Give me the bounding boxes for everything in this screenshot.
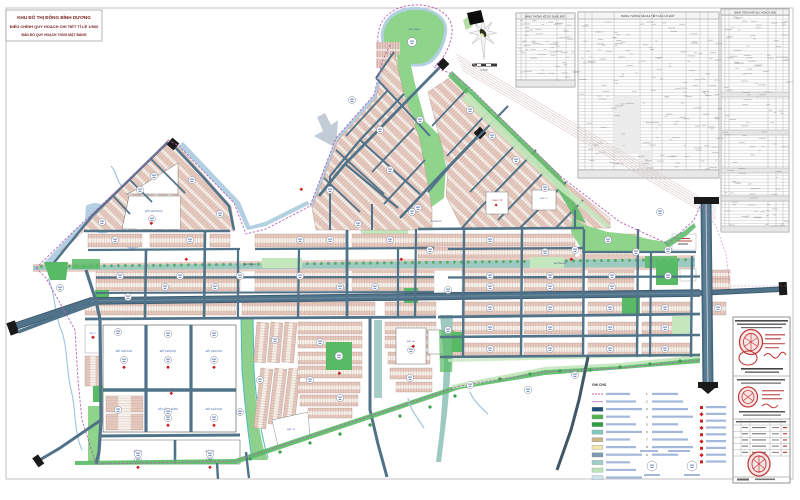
svg-text:BẢNG THỐNG KÊ CHI TIẾT CÁC LÔ: BẢNG THỐNG KÊ CHI TIẾT CÁC LÔ ĐẤT	[621, 13, 674, 18]
svg-text:ĐIỀU CHỈNH QUY HOẠCH CHI TIẾT: ĐIỀU CHỈNH QUY HOẠCH CHI TIẾT TỈ LỆ 1/50…	[10, 24, 99, 29]
svg-text:ĐẤT CX: ĐẤT CX	[287, 428, 296, 431]
svg-text:ĐẤT GIÁO DỤC: ĐẤT GIÁO DỤC	[145, 210, 162, 213]
svg-text:BẢNG TỔNG HỢP QUY HOẠCH SDĐ: BẢNG TỔNG HỢP QUY HOẠCH SDĐ	[734, 12, 775, 15]
svg-text:GHI CHÚ: GHI CHÚ	[592, 382, 607, 387]
svg-text:ĐẤT CC: ĐẤT CC	[90, 332, 97, 335]
svg-text:9.: 9.	[646, 453, 649, 457]
svg-text:ĐẤT GIÁO DỤC: ĐẤT GIÁO DỤC	[206, 408, 223, 411]
svg-text:CÂY XANH: CÂY XANH	[408, 28, 420, 31]
svg-text:ĐẤT GD: ĐẤT GD	[407, 340, 416, 343]
svg-text:BẢN ĐỒ QUY HOẠCH TỔNG MẶT BẰNG: BẢN ĐỒ QUY HOẠCH TỔNG MẶT BẰNG	[22, 32, 87, 37]
svg-text:ĐƯỜNG D1: ĐƯỜNG D1	[244, 263, 257, 266]
svg-text:3.: 3.	[646, 407, 649, 411]
svg-text:ĐẤT GIÁO DỤC: ĐẤT GIÁO DỤC	[160, 350, 177, 353]
svg-text:ĐẤT CC: ĐẤT CC	[540, 197, 548, 200]
svg-text:ĐẤT GIÁO DỤC: ĐẤT GIÁO DỤC	[116, 350, 133, 353]
svg-text:1.: 1.	[646, 392, 649, 396]
svg-text:2.: 2.	[646, 400, 649, 404]
svg-text:6.: 6.	[646, 430, 649, 434]
svg-text:ĐƯỜNG N5: ĐƯỜNG N5	[431, 220, 443, 223]
svg-text:8.: 8.	[646, 445, 649, 449]
svg-text:7.: 7.	[646, 438, 649, 442]
svg-text:TRẠM Y TẾ: TRẠM Y TẾ	[492, 199, 503, 202]
svg-text:5.: 5.	[646, 422, 649, 426]
svg-text:ĐẤT GIÁO DỤC: ĐẤT GIÁO DỤC	[206, 350, 223, 353]
svg-text:4.: 4.	[646, 415, 649, 419]
svg-text:ĐƯỜNG D2: ĐƯỜNG D2	[554, 262, 567, 265]
svg-text:KHU ĐÔ THỊ ĐÔNG BÌNH DƯƠNG: KHU ĐÔ THỊ ĐÔNG BÌNH DƯƠNG	[17, 13, 91, 20]
